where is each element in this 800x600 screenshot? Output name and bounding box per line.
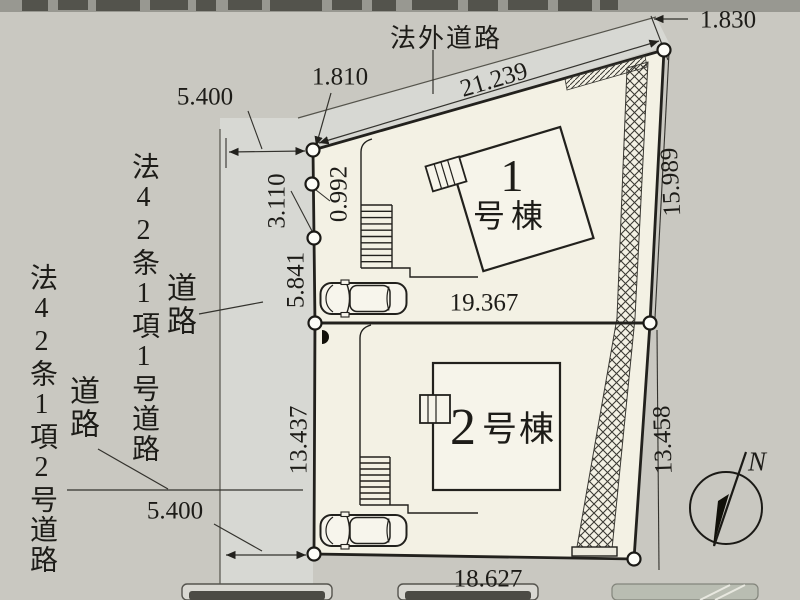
- dim-seg-3110: 3.110: [265, 173, 290, 228]
- dim-mid-edge: 19.367: [450, 291, 519, 316]
- dim-bottom-edge: 18.627: [454, 567, 523, 592]
- left-road-upper-name: 法42条1項1号道路: [129, 152, 157, 464]
- building-2-suffix: 号棟: [482, 412, 556, 447]
- building-2-number: 2: [450, 402, 476, 454]
- building-1-suffix: 号棟: [473, 200, 549, 232]
- car-lot2: [321, 512, 407, 549]
- dim-road-width-bottom: 5.400: [147, 499, 203, 524]
- dim-seg-13437: 13.437: [287, 406, 312, 475]
- building-1-number: 1: [501, 153, 524, 199]
- compass-north-label: N: [748, 449, 766, 476]
- dim-right-upper: 15.989: [657, 147, 686, 217]
- top-road-label: 法外道路: [390, 26, 502, 52]
- left-road-lower-name: 法42条1項2号道路: [27, 263, 55, 575]
- left-road-lower-tag: 道路: [66, 375, 96, 441]
- dim-seg-5841: 5.841: [284, 252, 309, 308]
- site-plan-image: 法外道路 21.239 1.810 1.830 15.989 13.458 5.…: [0, 0, 800, 600]
- crosshatch-strip-foot: [572, 547, 617, 556]
- site-plan-drawing: [0, 0, 800, 600]
- car-lot1: [321, 280, 407, 317]
- cropped-top-strip: [0, 0, 800, 12]
- left-road-upper-tag: 道路: [163, 272, 193, 338]
- dim-top-left-offset: 1.810: [312, 65, 368, 90]
- dim-seg-0992: 0.992: [327, 166, 352, 222]
- dim-road-width-top: 5.400: [177, 85, 233, 110]
- dim-right-lower: 13.458: [649, 405, 676, 475]
- dim-top-right-offset: 1.830: [700, 8, 756, 33]
- building-2-porch: [420, 395, 450, 423]
